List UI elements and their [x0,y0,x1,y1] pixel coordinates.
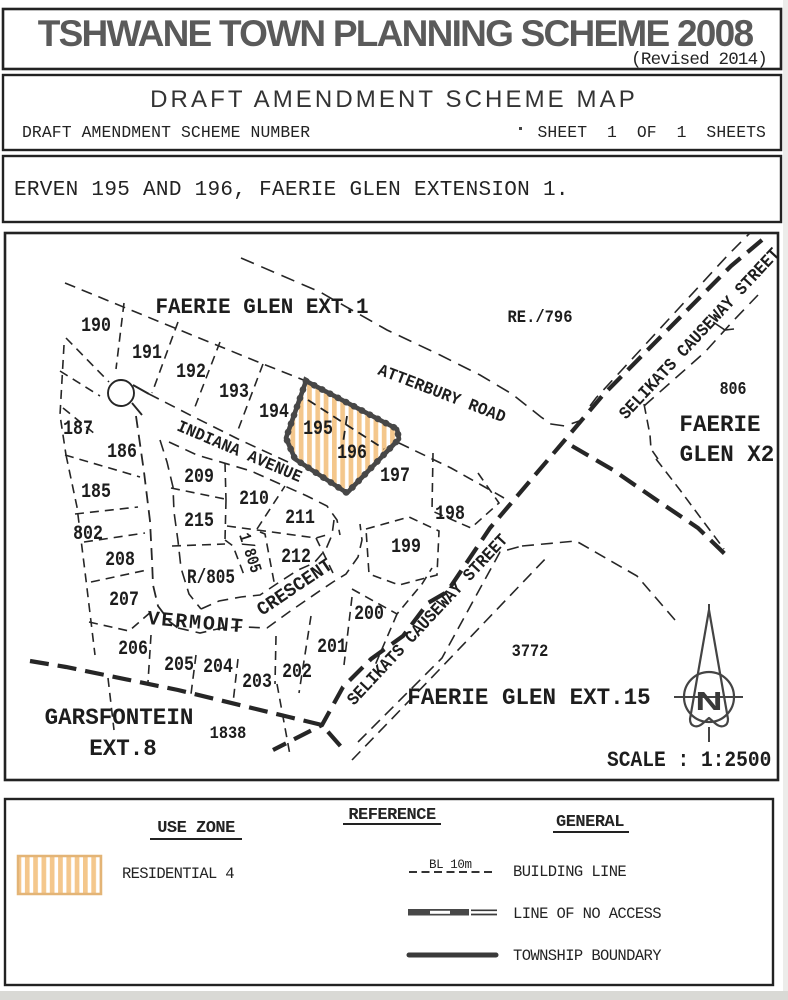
svg-text:197: 197 [380,465,410,488]
svg-text:TOWNSHIP BOUNDARY: TOWNSHIP BOUNDARY [513,947,662,965]
svg-text:FAERIE: FAERIE [679,412,760,438]
svg-text:REFERENCE: REFERENCE [348,806,436,825]
svg-text:1838: 1838 [210,724,247,744]
svg-text:208: 208 [105,549,135,572]
svg-text:191: 191 [132,342,162,365]
svg-text:TSHWANE TOWN PLANNING SCHEME 2: TSHWANE TOWN PLANNING SCHEME 2008 [38,13,754,54]
svg-text:187: 187 [63,418,93,441]
svg-text:193: 193 [219,381,249,404]
svg-text:SHEET 1 OF 1 SHEETS: SHEET 1 OF 1 SHEETS [537,123,766,142]
svg-text:211: 211 [285,507,315,530]
svg-text:N: N [695,687,722,716]
svg-text:202: 202 [282,661,312,684]
svg-text:(Revised 2014): (Revised 2014) [631,50,767,70]
svg-text:199: 199 [391,536,421,559]
svg-text:BL 10m: BL 10m [429,858,472,872]
svg-text:198: 198 [435,503,465,526]
svg-text:806: 806 [720,379,747,400]
svg-text:EXT.8: EXT.8 [89,736,157,762]
svg-text:201: 201 [317,636,347,659]
svg-text:215: 215 [184,510,214,533]
svg-text:190: 190 [81,315,111,338]
svg-text:192: 192 [176,361,206,384]
svg-text:203: 203 [242,671,272,694]
svg-text:LINE OF NO ACCESS: LINE OF NO ACCESS [513,905,661,923]
svg-text:GLEN X2: GLEN X2 [680,442,775,468]
svg-text:DRAFT AMENDMENT SCHEME MAP: DRAFT AMENDMENT SCHEME MAP [150,86,638,113]
svg-text:186: 186 [107,441,137,464]
svg-text:GENERAL: GENERAL [556,813,624,832]
svg-text:FAERIE GLEN EXT.1: FAERIE GLEN EXT.1 [155,296,368,321]
svg-text:DRAFT AMENDMENT SCHEME NUMBER: DRAFT AMENDMENT SCHEME NUMBER [22,123,310,142]
svg-text:ERVEN 195 AND 196, FAERIE GLEN: ERVEN 195 AND 196, FAERIE GLEN EXTENSION… [14,179,569,202]
svg-text:RESIDENTIAL 4: RESIDENTIAL 4 [122,865,234,883]
svg-text:209: 209 [184,466,214,489]
svg-text:BUILDING LINE: BUILDING LINE [513,863,626,881]
svg-text:195: 195 [303,418,333,441]
svg-text:196: 196 [337,442,367,465]
svg-text:205: 205 [164,654,194,677]
svg-text:210: 210 [239,488,269,511]
svg-text:SCALE : 1:2500: SCALE : 1:2500 [607,749,771,773]
svg-text:212: 212 [281,546,311,569]
svg-text:206: 206 [118,638,148,661]
svg-text:FAERIE GLEN EXT.15: FAERIE GLEN EXT.15 [407,685,650,711]
svg-text:185: 185 [81,481,111,504]
svg-text:204: 204 [203,656,233,679]
svg-text:USE ZONE: USE ZONE [157,819,235,838]
svg-text:GARSFONTEIN: GARSFONTEIN [45,705,194,731]
svg-text:207: 207 [109,589,139,612]
svg-text:RE./796: RE./796 [508,308,573,328]
svg-text:200: 200 [354,603,384,626]
svg-text:R/805: R/805 [187,568,235,590]
svg-text:194: 194 [259,401,289,424]
svg-text:802: 802 [73,523,103,546]
svg-text:3772: 3772 [512,642,549,662]
